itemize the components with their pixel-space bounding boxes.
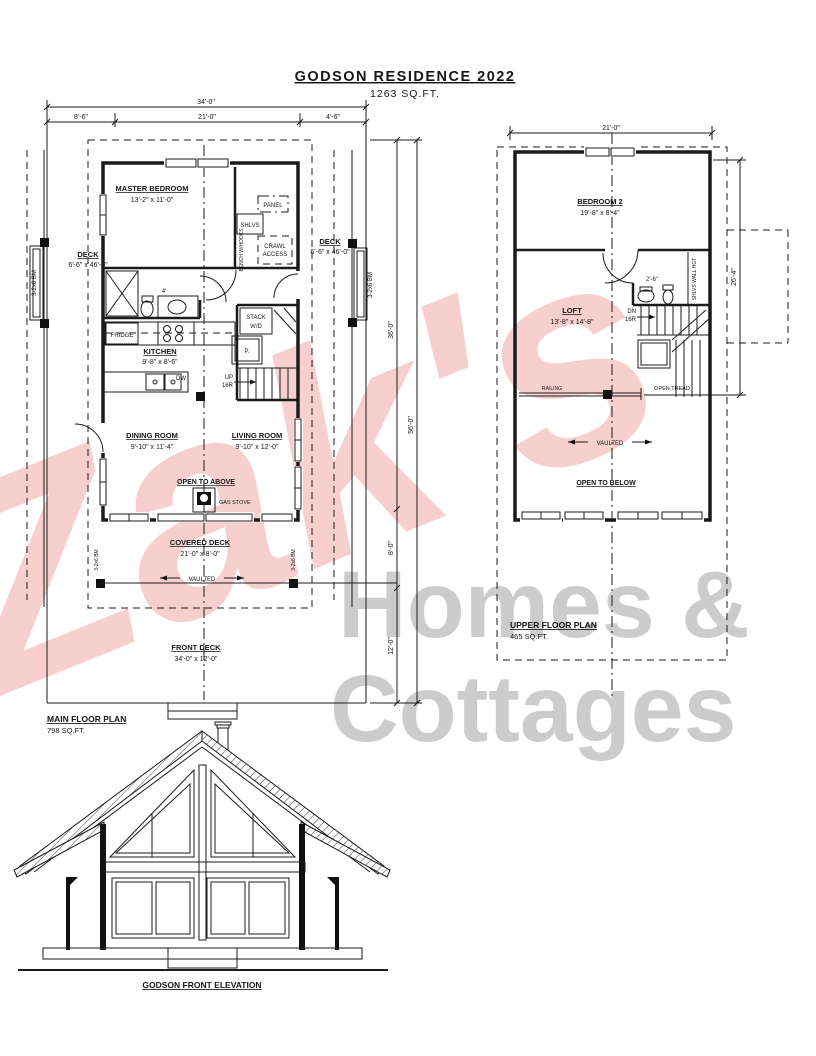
- dn-label-1: DN: [627, 309, 636, 315]
- panel-label: PANEL: [263, 203, 283, 209]
- front-deck-size: 34'-0" x 12'-0": [174, 656, 218, 663]
- dining-room-label: DINING ROOM: [126, 431, 178, 440]
- gas-stove-label: GAS STOVE: [219, 500, 251, 506]
- main-floor-plan-label: MAIN FLOOR PLAN: [47, 714, 126, 724]
- blueprint-canvas: Zak's Homes & Cottages GODSON RESIDENCE …: [0, 0, 816, 1056]
- loft-size: 13'-8" x 14'-8": [550, 319, 594, 326]
- elevation-base: [18, 948, 388, 970]
- open-tread-label: OPEN TREAD: [654, 386, 690, 392]
- stack-wd-label-1: STACK: [246, 315, 266, 321]
- up-label-2: 16R: [222, 383, 234, 389]
- bedroom2-label: BEDROOM 2: [577, 197, 622, 206]
- dim-8-6: 8'-6": [74, 114, 88, 121]
- bath-dim-label: 4': [162, 289, 166, 295]
- left-deck-beam-label: 3-2x6 BM: [32, 270, 38, 296]
- dim-21-0: 21'-0": [198, 114, 216, 121]
- crawl-access-label-2: ACCESS: [263, 252, 288, 258]
- stack-wd-label-2: W/D: [250, 324, 262, 330]
- upper-bath-dim: 2'-6": [646, 277, 658, 283]
- master-bedroom-size: 13'-2" x 11'-0": [131, 197, 174, 204]
- vaulted-label-upper: VAULTED: [597, 441, 624, 447]
- living-room-label: LIVING ROOM: [232, 431, 282, 440]
- open-to-above-label: OPEN TO ABOVE: [177, 479, 235, 486]
- upper-dim-26-4: 26'-4": [731, 268, 738, 286]
- right-deck-size: 6'-6" x 46'-0": [310, 249, 350, 256]
- bedroom2-size: 19'-8" x 8'-4": [580, 210, 620, 217]
- up-label-1: UP: [225, 375, 233, 381]
- left-deck-label: DECK: [77, 250, 99, 259]
- loft-label: LOFT: [562, 306, 582, 315]
- dim-12-0: 12'-0": [388, 637, 395, 655]
- dw-label: DW: [176, 376, 186, 382]
- dim-56-0: 56'-0": [408, 416, 415, 434]
- master-bedroom: MASTER BEDROOM 13'-2" x 11'-0": [116, 184, 189, 204]
- closet-block: PANEL SHLVS BENCH W/HOOKS CRAWL ACCESS: [206, 167, 298, 300]
- watermark-homes: Homes &: [338, 552, 750, 658]
- fridge-label: FRIDGE: [111, 333, 134, 339]
- covered-deck-beam-right: 3-2x6 BM: [291, 549, 297, 570]
- watermark-cottages: Cottages: [330, 656, 736, 762]
- upper-dim-21-0: 21'-0": [602, 125, 620, 132]
- dim-34-0: 34'-0": [197, 99, 215, 106]
- living-room-size: 9'-10" x 12'-0": [235, 444, 279, 451]
- page-title: GODSON RESIDENCE 2022: [295, 69, 516, 85]
- blueprint-sheet: Zak's Homes & Cottages GODSON RESIDENCE …: [0, 0, 816, 1056]
- page-title-sqft: 1263 SQ.FT.: [370, 88, 440, 100]
- front-deck-label: FRONT DECK: [171, 643, 221, 652]
- watermark-layer: Zak's Homes & Cottages: [0, 174, 750, 762]
- dim-4-6: 4'-6": [326, 114, 340, 121]
- kitchen-size: 9'-8" x 8'-6": [142, 359, 178, 366]
- main-floor-plan-area: 798 SQ.FT.: [47, 726, 85, 735]
- shlvs-wall-hgt-label: SHLVS WALL HGT: [692, 258, 698, 301]
- covered-deck-label: COVERED DECK: [170, 538, 231, 547]
- upper-top-dimension: 21'-0": [507, 125, 715, 140]
- vaulted-label-main: VAULTED: [189, 577, 216, 583]
- dining-room-size: 9'-10" x 11'-4": [131, 444, 174, 451]
- upper-floor-plan-area: 465 SQ.FT.: [510, 632, 548, 641]
- main-top-dimensions: 34'-0" 8'-6" 21'-0" 4'-6": [44, 99, 369, 127]
- railing-label: RAILING: [542, 386, 562, 392]
- covered-deck-size: 21'-0" x 8'-0": [180, 551, 220, 558]
- patio-doors: [112, 878, 289, 938]
- master-bedroom-label: MASTER BEDROOM: [116, 184, 189, 193]
- upper-floor-plan-label: UPPER FLOOR PLAN: [510, 620, 597, 630]
- dim-8-0: 8'-0": [388, 541, 395, 555]
- crawl-access-label-1: CRAWL: [264, 244, 286, 250]
- right-deck-label: DECK: [319, 237, 341, 246]
- dn-label-2: 16R: [625, 317, 637, 323]
- open-to-below-label: OPEN TO BELOW: [576, 480, 636, 487]
- shlvs-label: SHLVS: [240, 223, 259, 229]
- drawing-title: GODSON RESIDENCE 2022 1263 SQ.FT.: [295, 69, 516, 100]
- covered-deck-beam-left: 3-2x6 BM: [94, 549, 100, 570]
- dim-36-0: 36'-0": [388, 321, 395, 339]
- bench-hooks-label: BENCH W/HOOKS: [239, 228, 245, 272]
- main-bathroom: 4': [103, 268, 235, 318]
- elevation-posts: [66, 824, 339, 950]
- kitchen-label: KITCHEN: [143, 347, 176, 356]
- front-elevation: GODSON FRONT ELEVATION: [14, 722, 390, 990]
- right-deck-beam-label: 3-2x6 BM: [368, 272, 374, 298]
- elevation-label: GODSON FRONT ELEVATION: [142, 980, 261, 990]
- pantry-label: P.: [245, 349, 250, 355]
